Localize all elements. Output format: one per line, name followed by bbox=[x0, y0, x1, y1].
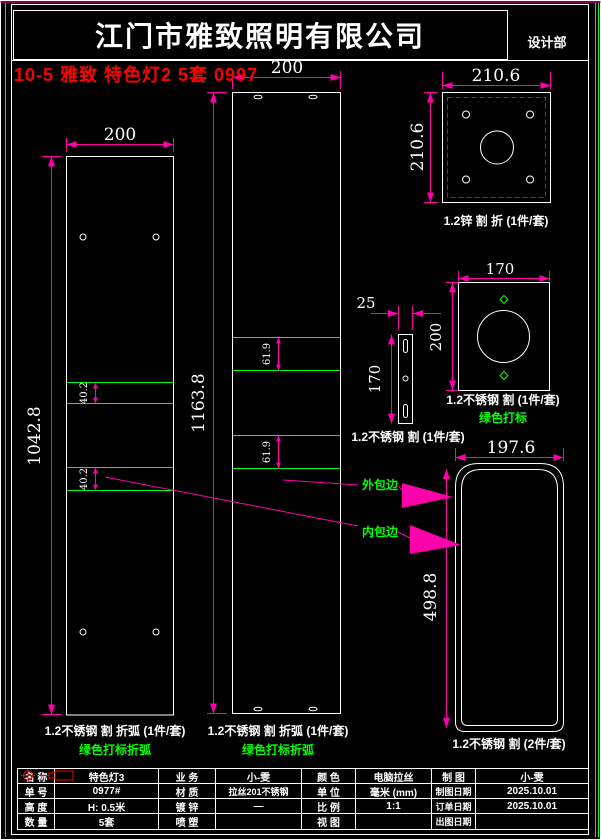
dim-text: 25 bbox=[356, 294, 375, 312]
wrap-panel-view: 197.6 498.8 1.2不锈钢 割 (2件/套) bbox=[421, 438, 566, 751]
green-mark-point bbox=[500, 296, 508, 304]
part-label: 1.2不锈钢 割 (1件/套) bbox=[446, 392, 559, 407]
green-mark-point bbox=[500, 372, 508, 380]
part-label: 1.2不锈钢 割 折弧 (1件/套) bbox=[208, 723, 349, 738]
hole bbox=[403, 376, 408, 381]
leader-line-inner bbox=[105, 477, 358, 526]
face-plate-outline bbox=[459, 283, 550, 391]
slot bbox=[404, 405, 408, 418]
order-note: 10-5 雅致 特色灯2 5套 0997 bbox=[14, 61, 258, 87]
dim-text: 197.6 bbox=[487, 438, 536, 458]
field-value bbox=[476, 814, 588, 829]
field-label: 数 量 bbox=[18, 814, 55, 829]
callout-inner-label: 内包边 bbox=[362, 524, 399, 539]
hole bbox=[254, 95, 262, 99]
field-value: 5套 bbox=[55, 814, 159, 829]
part-label: 1.2不锈钢 割 (1件/套) bbox=[351, 429, 464, 444]
dim-text: 1042.8 bbox=[25, 406, 45, 465]
face-plate-view: 170 200 1.2不锈钢 割 (1件/套) 绿色打标 bbox=[427, 260, 560, 425]
dim-text: 200 bbox=[427, 323, 445, 352]
hole bbox=[309, 707, 317, 711]
hole bbox=[80, 629, 86, 635]
wrap-outer-outline bbox=[456, 464, 564, 732]
field-label: 单 位 bbox=[302, 784, 356, 799]
field-label: 出图日期 bbox=[432, 814, 476, 829]
dim-text: 61.9 bbox=[262, 343, 273, 365]
leader-line-outer bbox=[283, 480, 358, 485]
dim-text: 498.8 bbox=[421, 573, 441, 622]
field-value: — bbox=[216, 799, 302, 814]
hole bbox=[527, 111, 534, 118]
dim-text: 210.6 bbox=[408, 123, 428, 172]
dim-text: 61.9 bbox=[262, 441, 273, 463]
hole bbox=[463, 176, 470, 183]
field-label: 比 例 bbox=[302, 799, 356, 814]
field-value: 小-雯 bbox=[476, 769, 588, 784]
strip-view: 25 170 1.2不锈钢 割 (1件/套) bbox=[351, 294, 464, 444]
dim-text: 210.6 bbox=[472, 66, 521, 86]
field-label: 制 图 bbox=[432, 769, 476, 784]
mid-panel-outline bbox=[233, 93, 341, 714]
field-label: 业 务 bbox=[159, 769, 216, 784]
field-label: 颜 色 bbox=[302, 769, 356, 784]
wrap-inner-outline bbox=[462, 470, 558, 726]
part-label: 1.2不锈钢 割 (2件/套) bbox=[452, 736, 565, 751]
field-label: 视 图 bbox=[302, 814, 356, 829]
field-value: 小-雯 bbox=[216, 769, 302, 784]
dim-text: 40.2 bbox=[79, 382, 90, 404]
part-sublabel: 绿色打标 bbox=[479, 410, 527, 425]
field-value: 0977# bbox=[55, 784, 159, 799]
field-value: H: 0.5米 bbox=[55, 799, 159, 814]
dim-text: 1163.8 bbox=[189, 373, 209, 432]
drawing-layer: 40.2 40.2 200 1042.8 1.2不锈钢 割 折弧 (1件/套) … bbox=[0, 0, 601, 840]
field-label: 镀 锌 bbox=[159, 799, 216, 814]
field-value: 拉丝201不锈钢 bbox=[216, 784, 302, 799]
field-value: 2025.10.01 bbox=[476, 784, 588, 799]
dim-text: 200 bbox=[271, 58, 303, 78]
field-value: 电脑拉丝 bbox=[356, 769, 432, 784]
hole bbox=[80, 234, 86, 240]
dim-text: 170 bbox=[486, 260, 515, 278]
big-arrow-inner bbox=[410, 525, 461, 554]
hole bbox=[153, 234, 159, 240]
hole bbox=[463, 111, 470, 118]
dim-text: 200 bbox=[104, 125, 136, 145]
field-label: 订单日期 bbox=[432, 799, 476, 814]
part-label: 1.2不锈钢 割 折弧 (1件/套) bbox=[45, 723, 186, 738]
hole bbox=[254, 707, 262, 711]
hole bbox=[527, 176, 534, 183]
center-hole bbox=[481, 131, 514, 164]
part-sublabel: 绿色打标折弧 bbox=[242, 742, 314, 757]
dim-text: 40.2 bbox=[79, 468, 90, 490]
hole bbox=[309, 95, 317, 99]
big-arrow-outer bbox=[402, 483, 453, 508]
left-panel-view: 40.2 40.2 200 1042.8 1.2不锈钢 割 折弧 (1件/套) … bbox=[25, 125, 185, 757]
field-value: 2025.10.01 bbox=[476, 799, 588, 814]
design-dept-label: 设计部 bbox=[505, 32, 589, 51]
view-symbol-cell bbox=[356, 814, 432, 829]
mid-panel-view: 61.9 61.9 200 1163.8 1.2不锈钢 割 折弧 (1件/套) … bbox=[189, 58, 348, 757]
field-label: 制图日期 bbox=[432, 784, 476, 799]
callout-outer-label: 外包边 bbox=[362, 477, 399, 492]
center-hole bbox=[478, 311, 530, 363]
slot bbox=[404, 340, 408, 353]
field-label: 单 号 bbox=[18, 784, 55, 799]
hole bbox=[153, 629, 159, 635]
field-value bbox=[216, 814, 302, 829]
title-block-table: 名 称 特色灯3 业 务 小-雯 颜 色 电脑拉丝 制 图 小-雯 单 号 09… bbox=[17, 768, 589, 830]
part-label: 1.2锌 割 折 (1件/套) bbox=[444, 213, 549, 228]
cad-drawing-sheet: 40.2 40.2 200 1042.8 1.2不锈钢 割 折弧 (1件/套) … bbox=[0, 0, 601, 840]
zinc-plate-outline bbox=[443, 93, 551, 203]
field-label: 材 质 bbox=[159, 784, 216, 799]
field-value: 1:1 bbox=[356, 799, 432, 814]
zinc-plate-view: 210.6 210.6 1.2锌 割 折 (1件/套) bbox=[408, 66, 551, 228]
field-value: 毫米 (mm) bbox=[356, 784, 432, 799]
field-label: 高 度 bbox=[18, 799, 55, 814]
dim-text: 170 bbox=[366, 365, 384, 394]
field-label: 喷 塑 bbox=[159, 814, 216, 829]
page-title: 江门市雅致照明有限公司 bbox=[13, 10, 507, 60]
edge-callouts: 外包边 内包边 bbox=[105, 477, 461, 554]
part-sublabel: 绿色打标折弧 bbox=[79, 742, 151, 757]
strip-outline bbox=[399, 335, 413, 424]
